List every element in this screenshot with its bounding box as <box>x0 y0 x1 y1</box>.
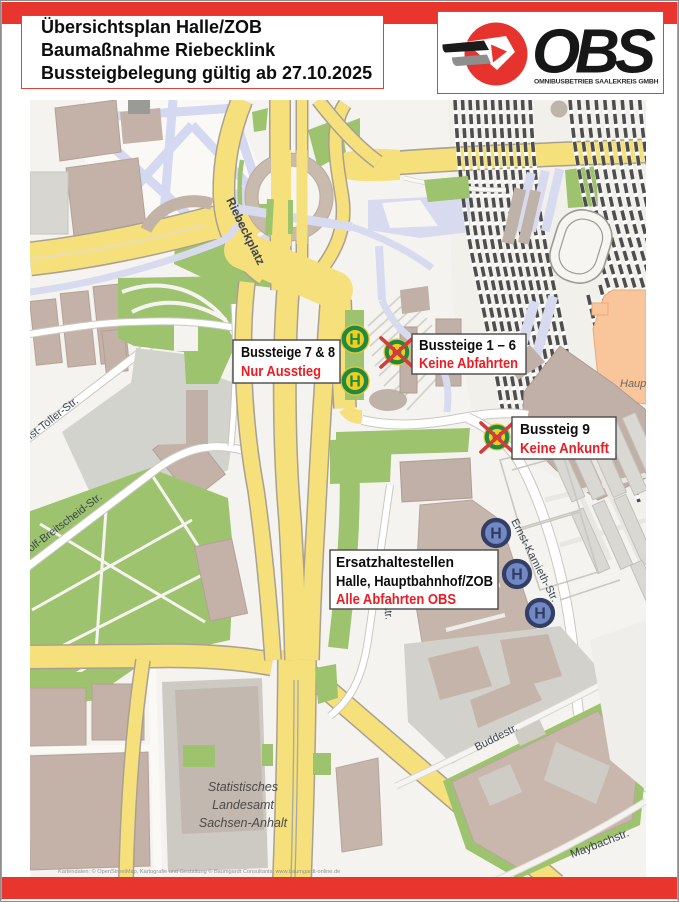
svg-text:Keine Ankunft: Keine Ankunft <box>520 441 609 457</box>
svg-text:Haup: Haup <box>620 378 646 390</box>
svg-text:Bussteig 9: Bussteig 9 <box>520 422 590 438</box>
svg-text:Landesamt: Landesamt <box>212 798 274 812</box>
svg-text:Ersatzhaltestellen: Ersatzhaltestellen <box>336 555 454 571</box>
svg-text:Sachsen-Anhalt: Sachsen-Anhalt <box>199 816 288 830</box>
svg-text:Bussteige 1 – 6: Bussteige 1 – 6 <box>419 338 516 354</box>
svg-text:Statistisches: Statistisches <box>208 780 278 794</box>
svg-text:Halle, Hauptbahnhof/ZOB: Halle, Hauptbahnhof/ZOB <box>336 574 493 590</box>
svg-text:Alle Abfahrten OBS: Alle Abfahrten OBS <box>336 592 456 608</box>
svg-text:H: H <box>349 374 361 391</box>
svg-text:Bussteige 7 & 8: Bussteige 7 & 8 <box>241 345 335 361</box>
svg-text:OMNIBUSBETRIEB SAALEKREIS GMBH: OMNIBUSBETRIEB SAALEKREIS GMBH <box>534 79 659 86</box>
svg-text:Keine Abfahrten: Keine Abfahrten <box>419 356 518 372</box>
svg-text:H: H <box>490 526 502 543</box>
svg-text:OBS: OBS <box>532 18 656 87</box>
svg-text:Nur Ausstieg: Nur Ausstieg <box>241 364 321 380</box>
svg-text:H: H <box>349 332 361 349</box>
svg-text:H: H <box>511 567 523 584</box>
svg-text:H: H <box>534 606 546 623</box>
